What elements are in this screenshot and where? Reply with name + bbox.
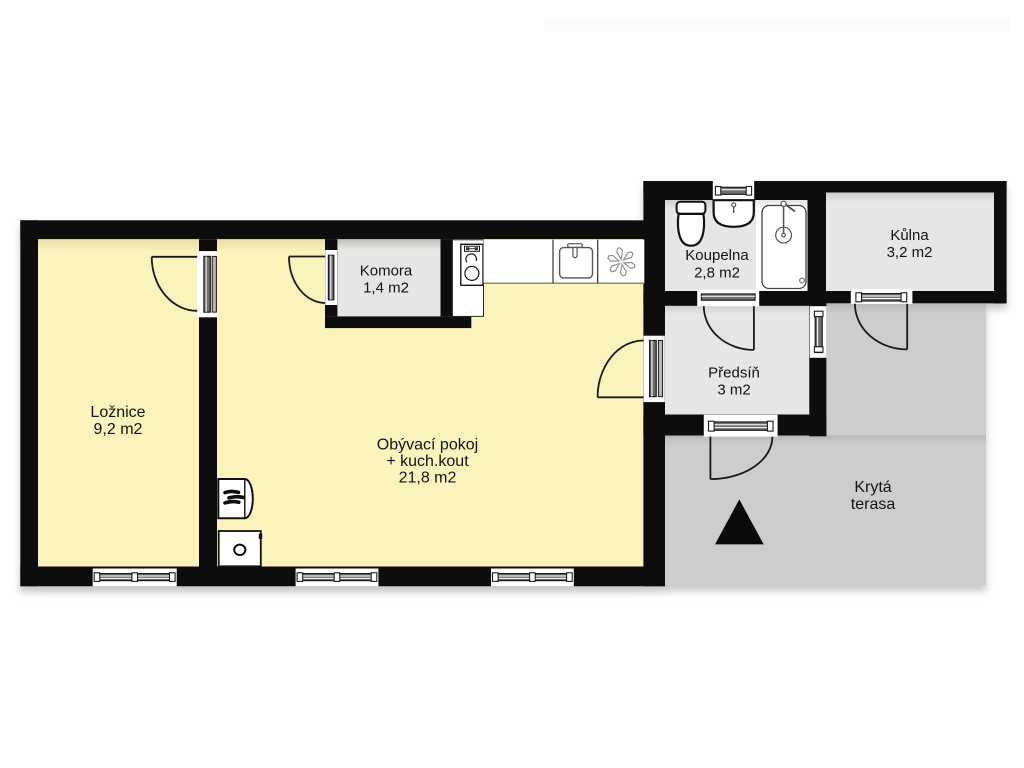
svg-text:Komora: Komora: [360, 263, 413, 280]
svg-text:2,8 m2: 2,8 m2: [694, 264, 740, 281]
svg-text:Krytá: Krytá: [854, 479, 891, 496]
svg-text:3,2 m2: 3,2 m2: [887, 244, 933, 261]
svg-text:1,4 m2: 1,4 m2: [363, 280, 409, 297]
svg-text:terasa: terasa: [851, 496, 896, 513]
svg-text:9,2 m2: 9,2 m2: [94, 421, 143, 438]
svg-text:+ kuch.kout: + kuch.kout: [386, 453, 469, 470]
svg-text:Koupelna: Koupelna: [685, 247, 749, 264]
svg-text:3 m2: 3 m2: [717, 382, 750, 399]
svg-text:21,8 m2: 21,8 m2: [399, 470, 457, 487]
svg-text:Ložnice: Ložnice: [90, 404, 145, 421]
svg-text:Kůlna: Kůlna: [890, 227, 929, 244]
svg-text:Obývací pokoj: Obývací pokoj: [377, 436, 478, 453]
svg-text:Předsíň: Předsíň: [708, 365, 760, 382]
